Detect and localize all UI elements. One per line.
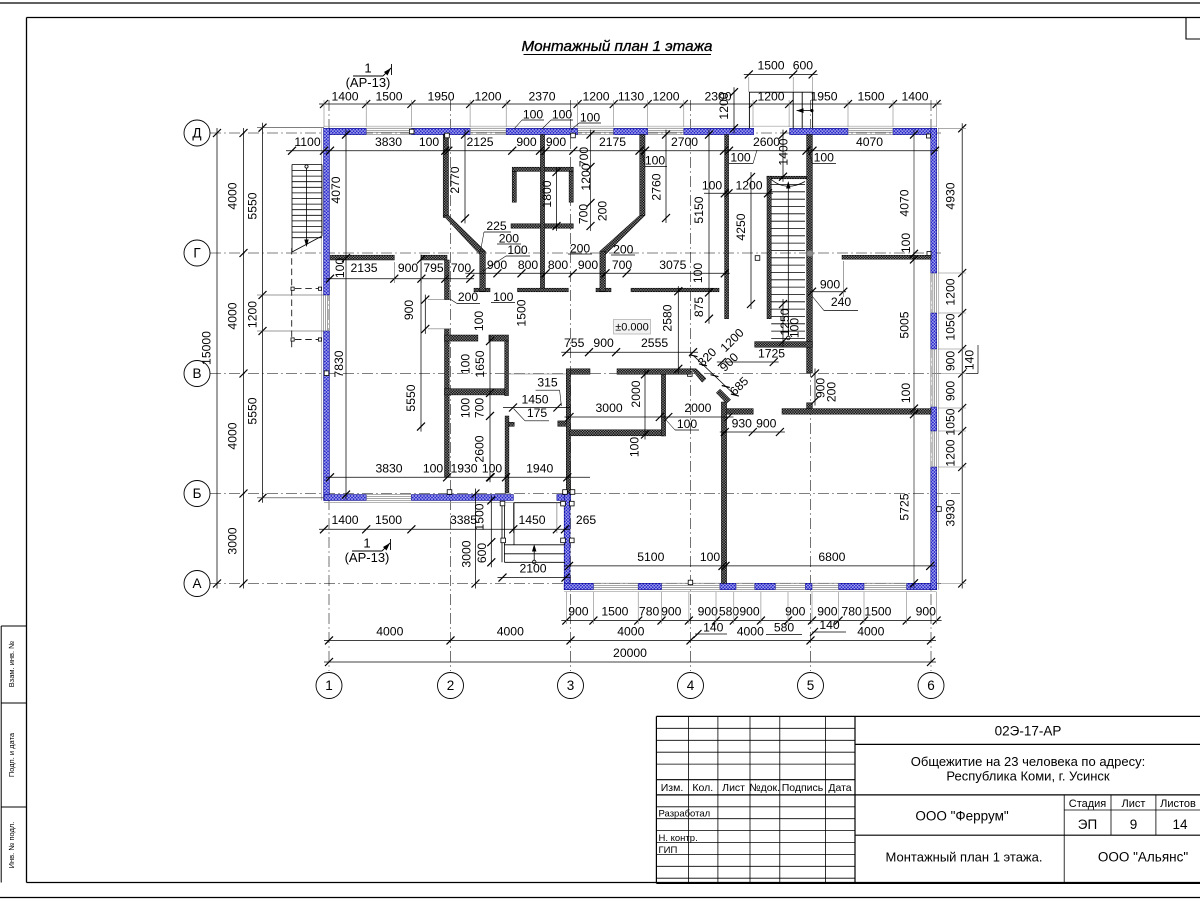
svg-text:100: 100 <box>700 550 721 564</box>
svg-text:1650: 1650 <box>473 350 487 377</box>
svg-text:875: 875 <box>692 297 706 318</box>
svg-text:100: 100 <box>677 417 698 431</box>
svg-text:100: 100 <box>580 111 601 125</box>
svg-text:100: 100 <box>333 258 347 279</box>
svg-text:6800: 6800 <box>818 550 845 564</box>
svg-text:800: 800 <box>548 258 569 272</box>
svg-text:1200: 1200 <box>717 92 731 119</box>
svg-text:1500: 1500 <box>857 89 884 103</box>
svg-text:1200: 1200 <box>652 89 679 103</box>
svg-text:2: 2 <box>447 678 455 693</box>
svg-text:Монтажный план 1 этажа: Монтажный план 1 этажа <box>522 38 713 55</box>
svg-text:100: 100 <box>702 178 723 192</box>
svg-text:4000: 4000 <box>857 625 884 639</box>
svg-text:1930: 1930 <box>450 462 477 476</box>
svg-text:Лист: Лист <box>722 782 745 794</box>
svg-text:800: 800 <box>518 258 539 272</box>
svg-text:100: 100 <box>507 243 528 257</box>
svg-text:900: 900 <box>944 381 958 402</box>
svg-text:265: 265 <box>576 513 597 527</box>
svg-text:1500: 1500 <box>601 605 628 619</box>
svg-text:(АР-13): (АР-13) <box>346 75 391 90</box>
svg-text:Н. контр.: Н. контр. <box>659 833 698 844</box>
svg-text:1950: 1950 <box>810 89 837 103</box>
svg-text:1050: 1050 <box>944 408 958 435</box>
svg-text:Листов: Листов <box>1160 798 1196 810</box>
svg-text:100: 100 <box>523 108 544 122</box>
svg-text:1800: 1800 <box>540 180 554 207</box>
svg-text:700: 700 <box>612 258 633 272</box>
svg-text:Дата: Дата <box>828 782 851 794</box>
svg-text:930: 930 <box>732 417 753 431</box>
svg-text:(АР-13): (АР-13) <box>345 550 390 565</box>
svg-text:600: 600 <box>793 59 814 73</box>
svg-text:700: 700 <box>577 204 591 225</box>
svg-text:900: 900 <box>817 605 838 619</box>
svg-text:100: 100 <box>552 108 573 122</box>
svg-text:1200: 1200 <box>735 178 762 192</box>
svg-text:755: 755 <box>564 336 585 350</box>
svg-text:2000: 2000 <box>684 401 711 415</box>
svg-text:100: 100 <box>628 437 642 458</box>
svg-text:4250: 4250 <box>734 213 748 240</box>
svg-text:3000: 3000 <box>596 401 623 415</box>
svg-text:Разработал: Разработал <box>659 809 711 820</box>
svg-text:900: 900 <box>516 135 537 149</box>
svg-text:1200: 1200 <box>944 278 958 305</box>
svg-text:200: 200 <box>825 382 839 403</box>
svg-text:5550: 5550 <box>404 384 418 411</box>
svg-text:1400: 1400 <box>901 89 928 103</box>
svg-text:3000: 3000 <box>460 540 474 567</box>
svg-text:140: 140 <box>819 618 840 632</box>
svg-text:1500: 1500 <box>757 59 784 73</box>
svg-text:240: 240 <box>831 295 852 309</box>
svg-text:А: А <box>192 576 201 591</box>
svg-text:Б: Б <box>193 486 202 501</box>
svg-text:900: 900 <box>661 605 682 619</box>
svg-text:Общежитие на 23 человека по ад: Общежитие на 23 человека по адресу: <box>911 754 1145 769</box>
svg-text:1500: 1500 <box>375 89 402 103</box>
svg-text:3830: 3830 <box>375 462 402 476</box>
svg-text:140: 140 <box>963 350 977 371</box>
svg-text:1: 1 <box>363 536 370 551</box>
svg-text:2000: 2000 <box>629 380 643 407</box>
svg-text:900: 900 <box>698 605 719 619</box>
svg-text:200: 200 <box>458 290 479 304</box>
svg-text:1200: 1200 <box>474 89 501 103</box>
svg-text:4930: 4930 <box>944 182 958 209</box>
svg-text:1450: 1450 <box>521 393 548 407</box>
svg-text:100: 100 <box>458 354 472 375</box>
svg-text:2555: 2555 <box>641 336 668 350</box>
svg-text:900: 900 <box>593 336 614 350</box>
svg-text:15000: 15000 <box>200 331 214 365</box>
svg-text:3075: 3075 <box>659 258 686 272</box>
svg-text:Подпись: Подпись <box>782 782 824 794</box>
svg-text:3: 3 <box>567 678 575 693</box>
svg-text:Лист: Лист <box>1122 798 1146 810</box>
svg-text:14: 14 <box>1172 817 1188 832</box>
svg-text:№док.: №док. <box>749 782 780 794</box>
svg-text:4000: 4000 <box>226 302 240 329</box>
svg-text:900: 900 <box>756 417 777 431</box>
svg-text:100: 100 <box>899 383 913 404</box>
svg-text:2600: 2600 <box>473 435 487 462</box>
svg-text:2770: 2770 <box>448 166 462 193</box>
svg-text:Кол.: Кол. <box>692 782 713 794</box>
svg-text:700: 700 <box>577 147 591 168</box>
svg-text:580: 580 <box>719 605 740 619</box>
svg-text:4000: 4000 <box>376 625 403 639</box>
svg-text:3000: 3000 <box>226 527 240 554</box>
svg-text:6: 6 <box>927 678 935 693</box>
svg-text:1200: 1200 <box>246 301 260 328</box>
svg-text:4000: 4000 <box>497 625 524 639</box>
svg-text:900: 900 <box>402 300 416 321</box>
svg-text:140: 140 <box>703 621 724 635</box>
svg-text:Изм.: Изм. <box>661 782 684 794</box>
svg-text:780: 780 <box>639 605 660 619</box>
svg-text:2760: 2760 <box>650 173 664 200</box>
svg-text:4000: 4000 <box>226 422 240 449</box>
svg-text:1050: 1050 <box>944 313 958 340</box>
svg-text:4070: 4070 <box>856 135 883 149</box>
svg-text:4: 4 <box>687 678 695 693</box>
svg-text:200: 200 <box>570 242 591 256</box>
svg-text:1725: 1725 <box>758 347 785 361</box>
svg-text:315: 315 <box>537 376 558 390</box>
svg-text:02Э-17-АР: 02Э-17-АР <box>995 723 1062 738</box>
svg-text:ООО "Альянс": ООО "Альянс" <box>1098 850 1188 865</box>
svg-text:1400: 1400 <box>331 89 358 103</box>
svg-text:700: 700 <box>473 398 487 419</box>
svg-text:Г: Г <box>193 246 201 261</box>
svg-text:3830: 3830 <box>375 135 402 149</box>
svg-text:900: 900 <box>944 351 958 372</box>
svg-text:100: 100 <box>482 462 503 476</box>
svg-text:1200: 1200 <box>582 89 609 103</box>
svg-text:100: 100 <box>423 462 444 476</box>
svg-text:1: 1 <box>364 61 371 76</box>
svg-text:100: 100 <box>899 233 913 254</box>
svg-text:100: 100 <box>788 318 802 339</box>
svg-text:2175: 2175 <box>599 135 626 149</box>
svg-text:2100: 2100 <box>519 562 546 576</box>
svg-text:175: 175 <box>527 406 548 420</box>
svg-text:4070: 4070 <box>898 189 912 216</box>
svg-text:20000: 20000 <box>613 646 647 660</box>
svg-text:1940: 1940 <box>526 462 553 476</box>
svg-text:580: 580 <box>774 621 795 635</box>
svg-text:В: В <box>192 366 201 381</box>
svg-text:900: 900 <box>578 258 599 272</box>
svg-text:100: 100 <box>730 151 751 165</box>
svg-text:2125: 2125 <box>466 135 493 149</box>
svg-text:1100: 1100 <box>294 135 320 149</box>
svg-text:1500: 1500 <box>375 513 402 527</box>
svg-text:9: 9 <box>1130 817 1138 832</box>
svg-text:5: 5 <box>807 678 815 693</box>
svg-text:1: 1 <box>325 678 333 693</box>
svg-text:100: 100 <box>459 398 473 419</box>
svg-text:Монтажный план 1 этажа.: Монтажный план 1 этажа. <box>886 850 1043 865</box>
svg-text:900: 900 <box>546 135 567 149</box>
svg-text:±0.000: ±0.000 <box>615 322 649 334</box>
svg-text:100: 100 <box>472 311 486 332</box>
svg-text:1500: 1500 <box>864 605 891 619</box>
svg-text:4070: 4070 <box>329 176 343 203</box>
svg-text:1500: 1500 <box>515 299 529 326</box>
svg-text:Д: Д <box>192 126 201 141</box>
svg-text:900: 900 <box>916 605 937 619</box>
svg-text:5550: 5550 <box>246 397 260 424</box>
svg-text:1450: 1450 <box>518 513 545 527</box>
svg-text:4000: 4000 <box>226 182 240 209</box>
svg-text:1200: 1200 <box>757 89 784 103</box>
svg-text:ГИП: ГИП <box>659 845 678 856</box>
svg-text:2370: 2370 <box>528 89 555 103</box>
svg-text:1400: 1400 <box>777 138 791 165</box>
svg-text:2135: 2135 <box>350 261 377 275</box>
svg-text:795: 795 <box>423 261 444 275</box>
svg-text:5005: 5005 <box>898 311 912 338</box>
svg-text:4000: 4000 <box>617 625 644 639</box>
svg-text:5100: 5100 <box>637 550 664 564</box>
svg-text:900: 900 <box>739 605 760 619</box>
svg-text:3930: 3930 <box>944 499 958 526</box>
svg-text:5725: 5725 <box>898 493 912 520</box>
svg-text:200: 200 <box>613 243 634 257</box>
svg-text:2580: 2580 <box>661 304 675 331</box>
svg-text:1500: 1500 <box>473 503 487 530</box>
svg-text:100: 100 <box>419 135 440 149</box>
svg-text:200: 200 <box>596 201 610 222</box>
svg-text:100: 100 <box>645 154 666 168</box>
svg-text:100: 100 <box>691 263 705 284</box>
svg-text:Подп. и дата: Подп. и дата <box>7 732 16 777</box>
svg-text:ООО "Феррум": ООО "Феррум" <box>915 808 1009 823</box>
svg-text:100: 100 <box>493 290 514 304</box>
svg-text:ЭП: ЭП <box>1078 817 1097 832</box>
svg-text:1950: 1950 <box>427 89 454 103</box>
svg-text:Республика Коми, г. Усинск: Республика Коми, г. Усинск <box>946 769 1109 784</box>
svg-text:900: 900 <box>398 261 419 275</box>
svg-text:1130: 1130 <box>618 89 644 103</box>
svg-text:Инв. № подл.: Инв. № подл. <box>7 822 16 869</box>
svg-text:900: 900 <box>820 278 841 292</box>
svg-text:900: 900 <box>487 258 508 272</box>
svg-text:1400: 1400 <box>331 513 358 527</box>
svg-text:780: 780 <box>841 605 862 619</box>
svg-text:5150: 5150 <box>692 196 706 223</box>
svg-text:Взам. инв. №: Взам. инв. № <box>7 641 16 687</box>
svg-text:600: 600 <box>475 543 489 564</box>
svg-text:1200: 1200 <box>944 439 958 466</box>
svg-text:2700: 2700 <box>671 135 698 149</box>
svg-text:700: 700 <box>451 261 472 275</box>
svg-text:Стадия: Стадия <box>1069 798 1107 810</box>
svg-text:7830: 7830 <box>332 350 346 377</box>
svg-text:5550: 5550 <box>246 192 260 219</box>
svg-text:4000: 4000 <box>737 625 764 639</box>
svg-text:100: 100 <box>814 151 835 165</box>
svg-text:900: 900 <box>568 605 589 619</box>
